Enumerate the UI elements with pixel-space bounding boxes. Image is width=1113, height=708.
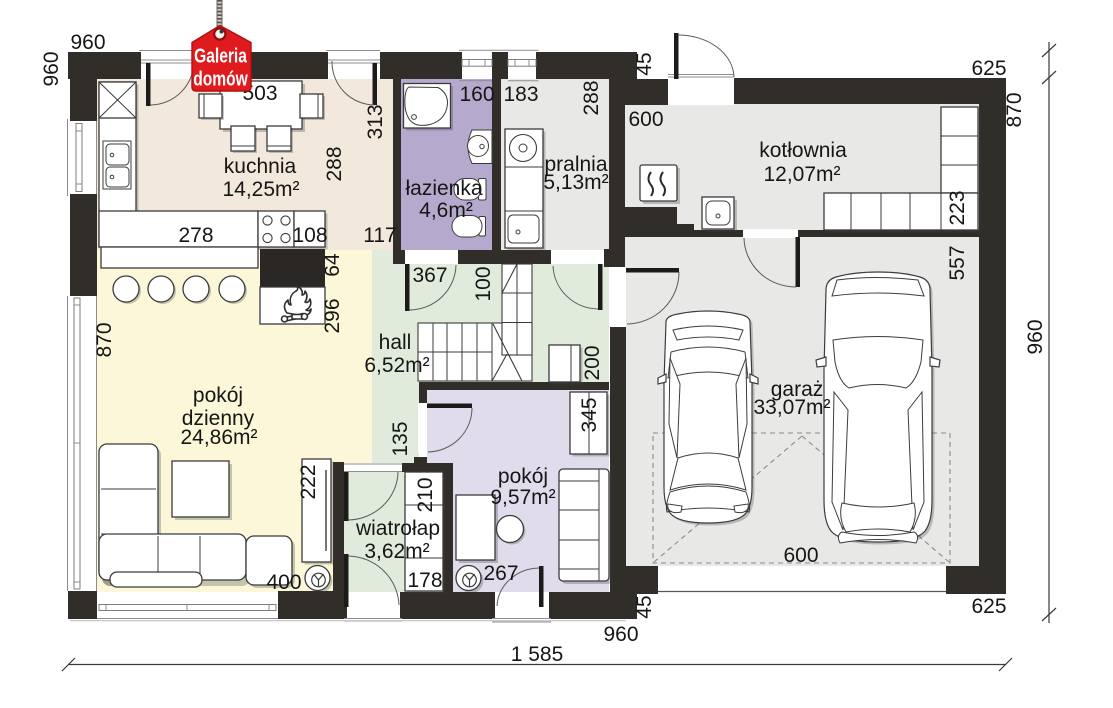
- svg-text:278: 278: [178, 224, 213, 247]
- svg-text:4,6m²: 4,6m²: [419, 199, 473, 222]
- svg-text:100: 100: [472, 266, 495, 301]
- svg-text:1 585: 1 585: [511, 643, 564, 666]
- svg-text:222: 222: [297, 464, 320, 499]
- svg-text:33,07m²: 33,07m²: [753, 396, 830, 419]
- svg-text:960: 960: [603, 623, 638, 646]
- svg-text:14,25m²: 14,25m²: [222, 178, 299, 201]
- svg-text:kuchnia: kuchnia: [224, 155, 297, 178]
- svg-text:960: 960: [1024, 319, 1047, 354]
- svg-text:hall: hall: [379, 331, 412, 354]
- svg-text:24,86m²: 24,86m²: [180, 426, 257, 449]
- svg-text:267: 267: [483, 562, 518, 585]
- svg-text:domów: domów: [193, 68, 248, 90]
- svg-text:367: 367: [412, 264, 447, 287]
- svg-text:223: 223: [946, 190, 969, 225]
- svg-text:296: 296: [321, 298, 344, 333]
- svg-text:45: 45: [633, 52, 656, 75]
- svg-text:135: 135: [389, 421, 412, 456]
- svg-text:Galeria: Galeria: [194, 45, 248, 67]
- svg-text:łazienka: łazienka: [405, 177, 482, 200]
- svg-text:kotłownia: kotłownia: [759, 139, 847, 162]
- svg-text:45: 45: [633, 595, 656, 618]
- svg-text:288: 288: [580, 80, 603, 115]
- svg-text:960: 960: [40, 51, 63, 86]
- svg-text:600: 600: [783, 544, 818, 567]
- svg-text:625: 625: [971, 595, 1006, 618]
- svg-text:183: 183: [503, 83, 538, 106]
- svg-text:108: 108: [292, 224, 327, 247]
- svg-text:160: 160: [459, 83, 494, 106]
- svg-text:12,07m²: 12,07m²: [763, 163, 840, 186]
- svg-text:557: 557: [946, 245, 969, 280]
- svg-text:345: 345: [578, 397, 601, 432]
- svg-text:870: 870: [1003, 92, 1026, 127]
- svg-text:6,52m²: 6,52m²: [364, 354, 429, 377]
- svg-text:3,62m²: 3,62m²: [364, 540, 429, 563]
- svg-text:400: 400: [266, 571, 301, 594]
- svg-text:64: 64: [321, 253, 344, 277]
- svg-text:5,13m²: 5,13m²: [543, 171, 608, 194]
- svg-text:960: 960: [70, 31, 105, 54]
- svg-text:178: 178: [407, 569, 442, 592]
- svg-text:870: 870: [93, 322, 116, 357]
- svg-text:288: 288: [323, 146, 346, 181]
- svg-text:625: 625: [971, 57, 1006, 80]
- svg-text:wiatrołap: wiatrołap: [355, 517, 440, 540]
- svg-text:117: 117: [363, 224, 396, 247]
- svg-text:313: 313: [364, 104, 387, 139]
- svg-text:pokój: pokój: [193, 384, 243, 407]
- svg-text:600: 600: [628, 108, 663, 131]
- svg-text:200: 200: [581, 345, 604, 380]
- svg-text:pokój: pokój: [498, 465, 548, 488]
- svg-text:210: 210: [414, 477, 437, 512]
- svg-text:9,57m²: 9,57m²: [490, 486, 555, 509]
